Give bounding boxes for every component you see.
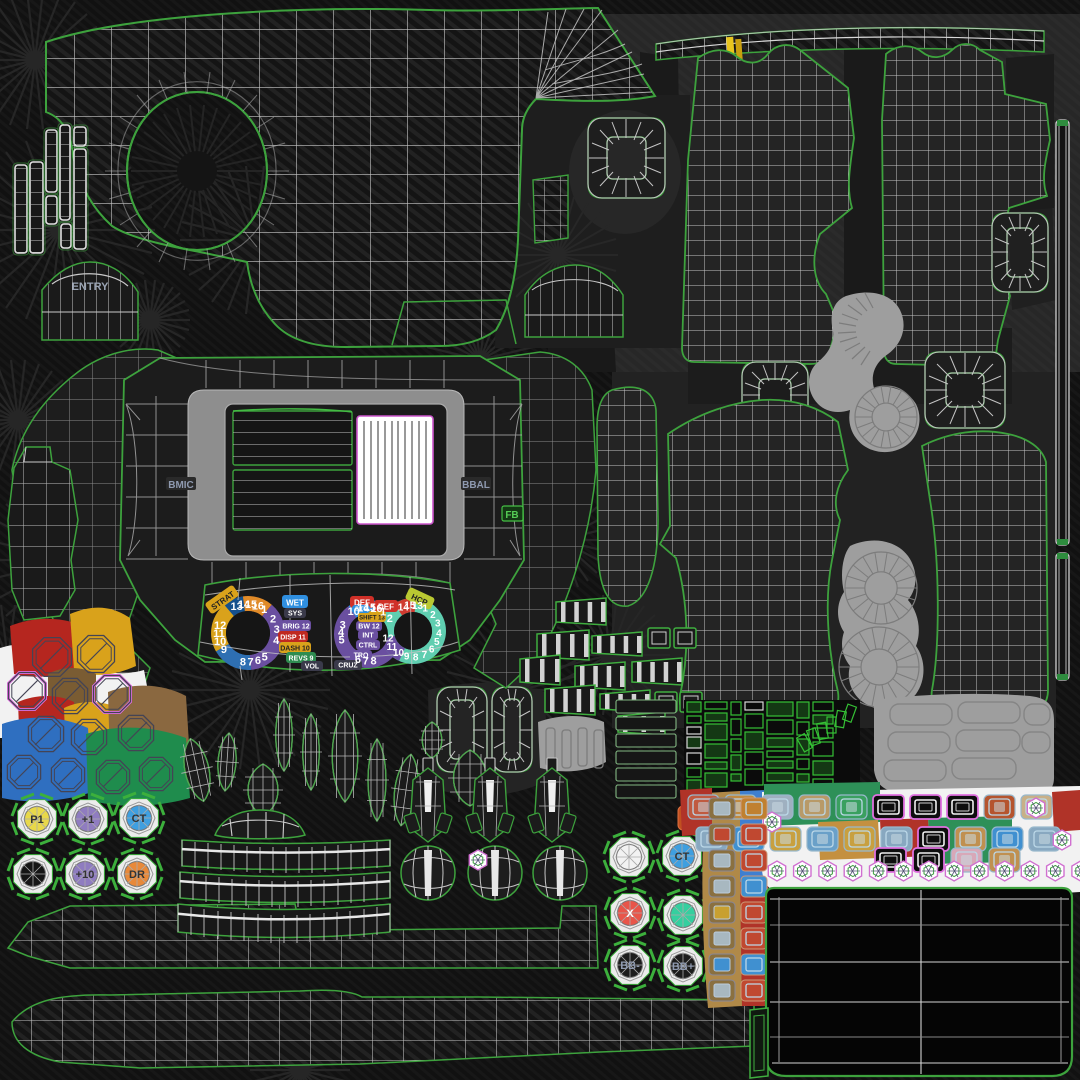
svg-text:8: 8 — [240, 656, 246, 668]
svg-text:BMIC: BMIC — [168, 480, 194, 491]
svg-text:CT: CT — [675, 851, 690, 863]
svg-text:1: 1 — [380, 606, 386, 618]
svg-text:2: 2 — [387, 613, 393, 625]
svg-text:13: 13 — [231, 601, 243, 613]
svg-text:WET: WET — [286, 599, 304, 608]
svg-text:9: 9 — [221, 644, 227, 656]
svg-text:7: 7 — [363, 656, 369, 668]
svg-text:ENTRY: ENTRY — [72, 281, 110, 293]
svg-text:DASH 10: DASH 10 — [280, 646, 310, 653]
svg-text:BW 12: BW 12 — [358, 624, 380, 631]
svg-text:DISP 11: DISP 11 — [280, 635, 306, 642]
svg-text:6: 6 — [429, 645, 435, 656]
svg-text:P1: P1 — [30, 814, 43, 826]
svg-text:6: 6 — [355, 654, 361, 666]
svg-text:X: X — [626, 908, 634, 920]
svg-text:6: 6 — [255, 655, 261, 667]
svg-text:BBAL: BBAL — [462, 480, 490, 491]
svg-text:BRIG 12: BRIG 12 — [282, 624, 309, 631]
svg-text:1: 1 — [422, 604, 428, 615]
svg-text:5: 5 — [262, 652, 268, 664]
svg-text:DR: DR — [129, 869, 145, 881]
svg-text:BB-: BB- — [620, 960, 640, 972]
svg-text:5: 5 — [339, 634, 345, 646]
svg-text:+1: +1 — [82, 814, 95, 826]
svg-text:CT: CT — [132, 813, 147, 825]
svg-text:5: 5 — [434, 637, 440, 648]
svg-text:8: 8 — [413, 652, 419, 663]
svg-text:8: 8 — [371, 655, 377, 667]
svg-text:4: 4 — [273, 635, 280, 647]
svg-text:10: 10 — [348, 606, 360, 618]
svg-text:12: 12 — [382, 634, 394, 645]
svg-text:7: 7 — [422, 650, 428, 661]
svg-text:SYS: SYS — [288, 611, 302, 618]
svg-text:INT: INT — [362, 633, 374, 640]
svg-text:7: 7 — [247, 657, 253, 669]
svg-text:VOL: VOL — [305, 664, 320, 671]
svg-text:1: 1 — [261, 604, 267, 616]
svg-text:+10: +10 — [76, 869, 95, 881]
svg-text:BB+: BB+ — [672, 961, 694, 973]
svg-text:9: 9 — [404, 652, 410, 663]
svg-text:CTRL: CTRL — [359, 643, 378, 650]
svg-text:FB: FB — [505, 510, 518, 521]
